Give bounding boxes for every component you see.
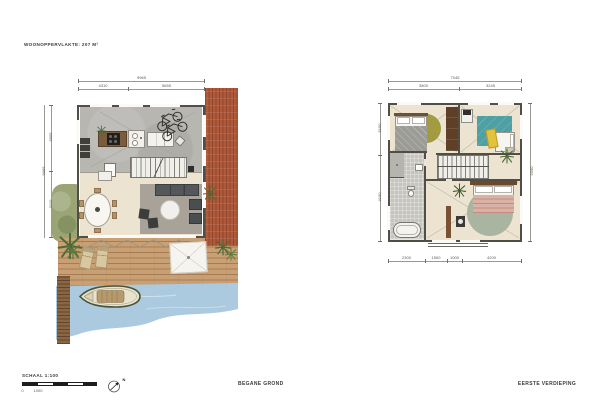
boat	[78, 284, 142, 309]
lounger	[95, 245, 109, 268]
ff-dim-left-seg2: 4190	[378, 187, 382, 207]
first-floor-caption: EERSTE VERDIEPING	[512, 382, 582, 387]
ff-dim-top-seg1: 3800	[388, 84, 459, 88]
living-area-title: WOONOPPERVLAKTE: 207 M²	[24, 43, 98, 48]
scale-label: SCHAAL 1:100	[22, 374, 58, 379]
window	[397, 102, 421, 105]
dim-tick	[521, 87, 522, 91]
ground-floor-caption: BEGANE GROND	[238, 382, 282, 387]
ff-dim-top-total: 7045	[388, 76, 522, 80]
window	[468, 102, 490, 105]
scale-tick-mid: 1000	[31, 389, 45, 393]
dim-tick	[528, 241, 532, 242]
interior-wall	[424, 151, 426, 159]
gf-dim-left-seg1: 5955	[49, 127, 53, 147]
gf-dim-top-seg1: 4310	[78, 84, 128, 88]
parasol-pole	[187, 256, 190, 259]
interior-wall	[424, 166, 426, 240]
north-label: N	[121, 378, 127, 382]
dim-tick	[521, 79, 522, 83]
dim-tick	[388, 79, 389, 83]
window	[520, 115, 523, 139]
floor-plan-sheet: WOONOPPERVLAKTE: 207 M² 9965 4310 5655 9…	[0, 0, 600, 413]
gf-dim-line	[78, 89, 205, 90]
dim-tick	[49, 105, 53, 106]
window	[387, 116, 390, 140]
bush	[202, 185, 218, 201]
dim-tick	[204, 79, 205, 83]
brick-terrace	[205, 88, 238, 246]
balcony-railing	[428, 243, 488, 247]
window	[150, 104, 180, 107]
dim-tick	[128, 87, 129, 91]
window	[76, 120, 79, 144]
interior-wall	[390, 151, 427, 153]
dim-tick	[78, 79, 79, 83]
sliding-door	[88, 235, 196, 238]
dim-tick	[378, 103, 382, 104]
gf-dim-top-seg2: 5655	[128, 84, 205, 88]
ff-dim-line	[388, 81, 522, 82]
window	[498, 102, 514, 105]
window	[203, 115, 206, 137]
window	[119, 104, 143, 107]
interior-wall	[452, 179, 522, 181]
ff-dim-line	[388, 89, 522, 90]
ff-dim-bottom-seg2: 1500	[425, 256, 447, 260]
ff-dim-top-seg2: 3245	[459, 84, 522, 88]
window	[387, 206, 390, 230]
interior-wall	[436, 153, 522, 155]
palm-tree	[64, 242, 82, 260]
scale-bar	[22, 382, 97, 386]
ff-dim-right-total: 9340	[530, 161, 534, 181]
gf-dim-line	[78, 81, 205, 82]
dim-tick	[388, 87, 389, 91]
window	[520, 196, 523, 224]
dim-tick	[521, 259, 522, 263]
ff-dim-bottom-seg1: 2300	[388, 256, 425, 260]
dim-tick	[378, 241, 382, 242]
ff-dim-bottom-seg3: 1000	[447, 256, 462, 260]
window	[90, 104, 112, 107]
interior-wall	[426, 179, 446, 181]
ground-floor-walls	[77, 105, 205, 238]
gf-dim-top-total: 9965	[78, 76, 205, 80]
dim-tick	[378, 155, 382, 156]
jetty-edge	[57, 276, 70, 344]
ff-dim-bottom-seg4: 4200	[462, 256, 521, 260]
ff-dim-line	[388, 261, 522, 262]
dim-tick	[528, 103, 532, 104]
first-floor-walls	[388, 103, 522, 242]
dim-tick	[459, 87, 460, 91]
ff-dim-left-seg1: 5150	[378, 118, 382, 138]
gf-dim-left-total: 9065	[42, 160, 46, 182]
dim-tick	[49, 171, 53, 172]
interior-wall	[458, 105, 460, 153]
scale-tick-start: 0	[20, 389, 25, 393]
bush	[224, 247, 238, 261]
dim-tick	[78, 87, 79, 91]
door-opening	[203, 150, 206, 166]
